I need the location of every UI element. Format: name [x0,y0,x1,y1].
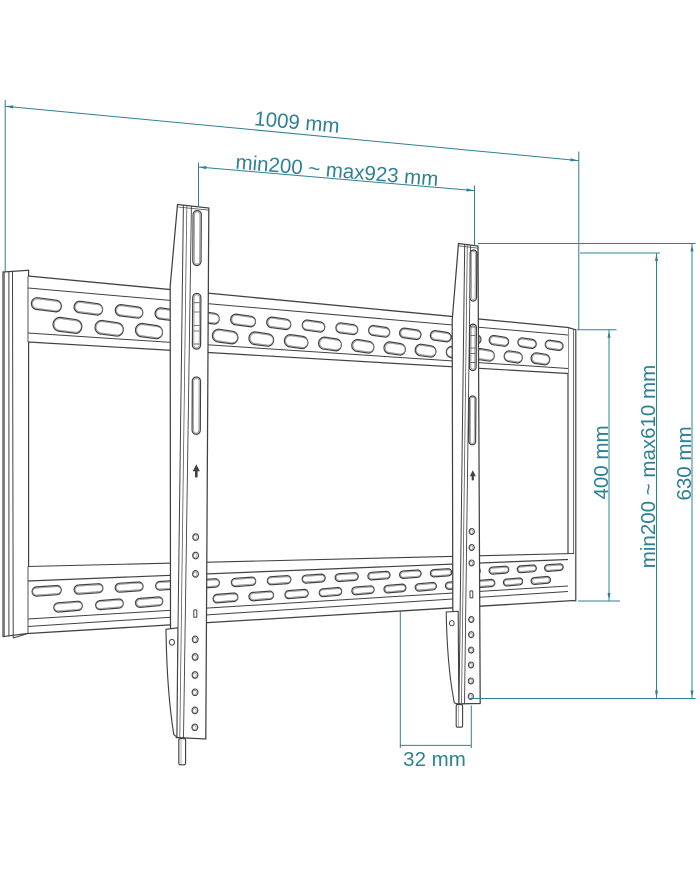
svg-text:32 mm: 32 mm [403,748,466,771]
svg-text:400 mm: 400 mm [590,425,613,499]
svg-text:min200 ~ max610 mm: min200 ~ max610 mm [637,365,660,568]
svg-text:630 mm: 630 mm [673,426,696,500]
